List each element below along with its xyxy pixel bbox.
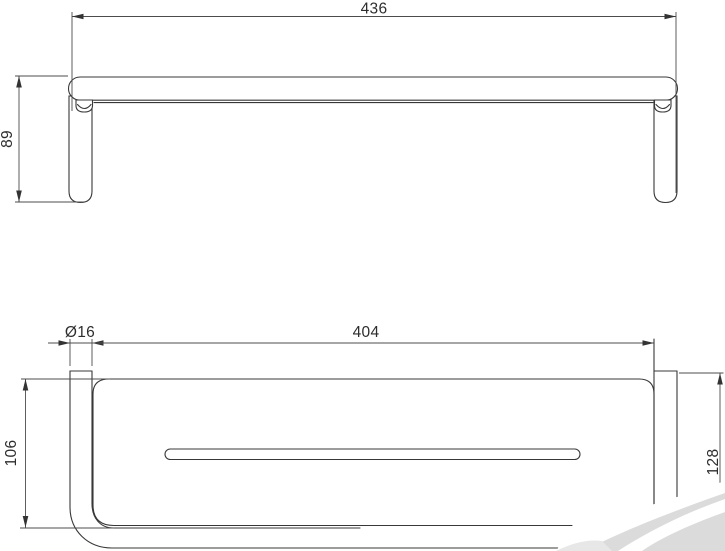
technical-drawing: 436 89 Ø16 [0,0,725,551]
dim-text-128: 128 [705,449,722,476]
dim-text-d16: Ø16 [65,324,95,341]
drawing-sheet: 436 89 Ø16 [0,0,725,551]
arrow-404-right [643,340,655,346]
arrow-106-top [23,379,29,391]
dim-text-89: 89 [0,130,16,148]
front-view [69,77,678,203]
arrow-89-top [16,76,22,88]
arrow-d16-left [59,340,71,346]
arrow-436-right [665,14,677,20]
arrow-106-bottom [23,516,29,528]
plan-shelf-plate [93,379,654,526]
dim-text-106: 106 [3,440,20,467]
front-rail-bar [69,77,678,100]
plan-shelf-slot [165,449,580,460]
plan-tube-left-outer-bend [70,507,112,548]
arrow-89-bottom [16,191,22,203]
arrow-128-top [717,373,723,385]
arrow-436-left [72,14,84,20]
dimension-106: 106 [3,379,114,528]
watermark [556,481,725,551]
dim-text-436: 436 [361,1,388,18]
dim-text-404: 404 [353,324,380,341]
plan-view [70,339,677,548]
dimension-diameter-16: Ø16 [48,324,104,366]
dimension-404: 404 [92,324,654,346]
